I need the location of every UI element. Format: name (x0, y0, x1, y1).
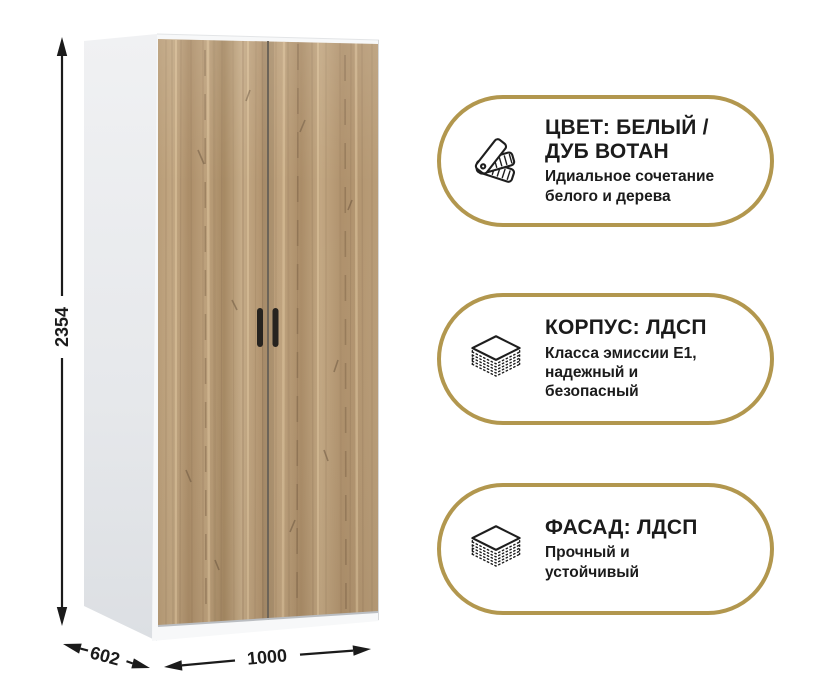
wardrobe-side-panel (84, 34, 157, 641)
badge-body-material: КОРПУС: ЛДСП Класса эмиссии Е1, надежный… (437, 293, 774, 425)
height-dimension: 2354 (52, 37, 72, 626)
width-dimension-label: 1000 (246, 645, 288, 669)
width-dimension: 1000 (164, 645, 371, 670)
wardrobe (84, 34, 379, 641)
layered-board-icon (468, 521, 524, 577)
depth-dimension-label: 602 (88, 643, 122, 670)
badge-facade-material: ФАСАД: ЛДСП Прочный и устойчивый (437, 483, 774, 615)
door-handle-left (257, 308, 263, 347)
product-infographic: 2354 602 1000 (0, 0, 816, 700)
color-swatch-fan-icon (468, 133, 524, 189)
badge-color: ЦВЕТ: БЕЛЫЙ / ДУБ ВОТАН Идиальное сочета… (437, 95, 774, 227)
depth-dimension: 602 (63, 643, 150, 670)
height-dimension-label: 2354 (52, 307, 72, 347)
door-handle-right (273, 308, 279, 347)
badge-title: КОРПУС: ЛДСП (545, 316, 707, 340)
badge-subtitle: Идиальное сочетание белого и дерева (545, 167, 714, 206)
badge-title: ЦВЕТ: БЕЛЫЙ / ДУБ ВОТАН (545, 116, 714, 163)
badge-title: ФАСАД: ЛДСП (545, 516, 698, 540)
badge-subtitle: Класса эмиссии Е1, надежный и безопасный (545, 344, 707, 402)
badge-subtitle: Прочный и устойчивый (545, 543, 698, 582)
layered-board-icon (468, 331, 524, 387)
